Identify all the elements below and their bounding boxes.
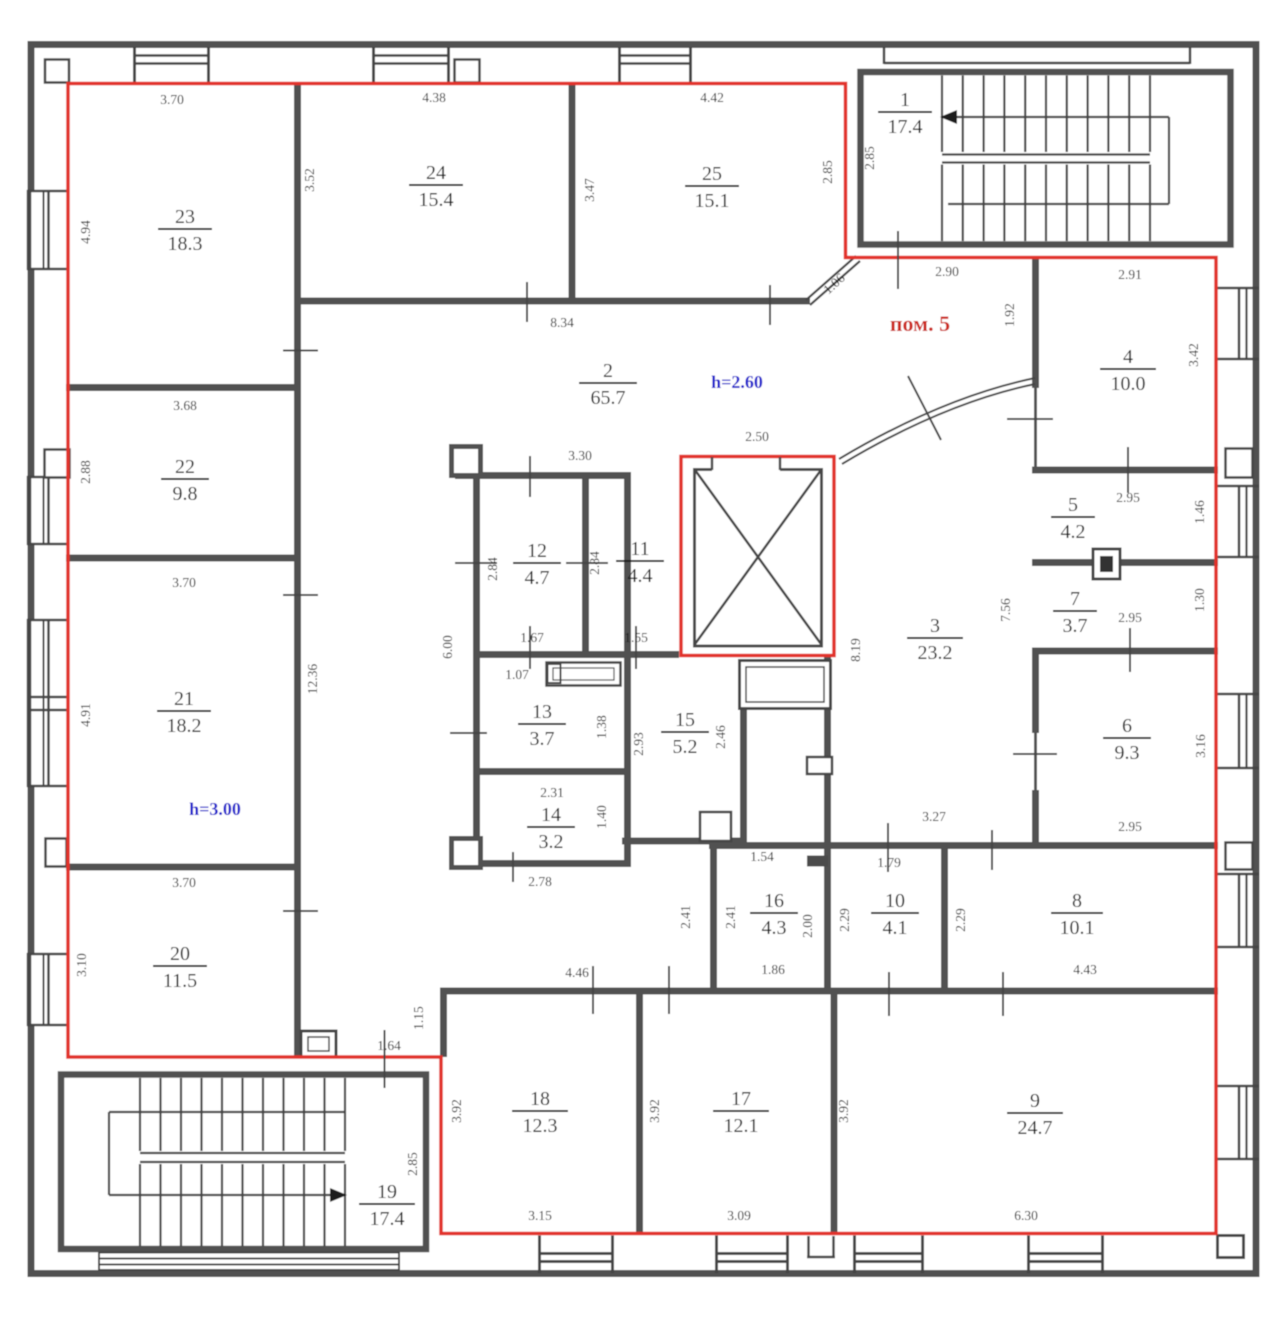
svg-text:2.50: 2.50 — [745, 429, 769, 444]
svg-text:6.00: 6.00 — [440, 635, 455, 659]
svg-text:11.5: 11.5 — [163, 970, 197, 992]
svg-text:24: 24 — [426, 162, 446, 184]
svg-text:12.3: 12.3 — [523, 1115, 558, 1137]
svg-text:2.90: 2.90 — [935, 264, 959, 279]
svg-text:1.15: 1.15 — [411, 1006, 426, 1030]
svg-text:17.4: 17.4 — [370, 1208, 405, 1230]
svg-text:1.55: 1.55 — [624, 630, 648, 645]
svg-text:10.1: 10.1 — [1060, 917, 1095, 939]
svg-text:3.92: 3.92 — [836, 1099, 851, 1123]
svg-text:3.52: 3.52 — [302, 168, 317, 192]
svg-text:7.56: 7.56 — [998, 598, 1013, 622]
svg-text:1.30: 1.30 — [1192, 588, 1207, 612]
svg-text:3.68: 3.68 — [173, 398, 197, 413]
svg-text:h=3.00: h=3.00 — [189, 799, 241, 819]
svg-text:9.8: 9.8 — [173, 483, 198, 505]
svg-text:3.27: 3.27 — [922, 809, 946, 824]
svg-text:22: 22 — [175, 456, 195, 478]
svg-text:9.3: 9.3 — [1115, 742, 1140, 764]
svg-text:2.29: 2.29 — [953, 908, 968, 932]
svg-text:3.7: 3.7 — [1063, 615, 1088, 637]
svg-text:4.2: 4.2 — [1061, 521, 1086, 543]
svg-text:8.19: 8.19 — [848, 638, 863, 662]
svg-text:2.91: 2.91 — [1118, 267, 1142, 282]
svg-text:15: 15 — [675, 709, 695, 731]
svg-text:3.70: 3.70 — [172, 875, 196, 890]
svg-text:2.84: 2.84 — [587, 551, 602, 575]
svg-text:4.38: 4.38 — [422, 90, 446, 105]
svg-text:2.46: 2.46 — [713, 725, 728, 749]
svg-text:16: 16 — [764, 890, 784, 912]
svg-text:2.00: 2.00 — [800, 914, 815, 938]
svg-text:4.3: 4.3 — [762, 917, 787, 939]
svg-text:1.92: 1.92 — [1002, 303, 1017, 327]
svg-text:3.30: 3.30 — [568, 448, 592, 463]
svg-text:3.7: 3.7 — [530, 728, 555, 750]
svg-text:3.2: 3.2 — [539, 831, 564, 853]
svg-text:24.7: 24.7 — [1018, 1117, 1053, 1139]
svg-text:65.7: 65.7 — [591, 387, 626, 409]
svg-text:2.88: 2.88 — [78, 460, 93, 484]
svg-text:1.79: 1.79 — [877, 855, 901, 870]
svg-text:2.31: 2.31 — [540, 785, 564, 800]
svg-text:4.42: 4.42 — [700, 90, 724, 105]
svg-text:3.10: 3.10 — [74, 953, 89, 977]
svg-text:1.64: 1.64 — [377, 1038, 401, 1053]
svg-text:2.95: 2.95 — [1118, 819, 1142, 834]
svg-text:2.41: 2.41 — [723, 905, 738, 929]
svg-text:1: 1 — [900, 89, 910, 111]
svg-text:23.2: 23.2 — [918, 642, 953, 664]
svg-text:21: 21 — [174, 688, 194, 710]
svg-text:2.95: 2.95 — [1118, 610, 1142, 625]
svg-text:3.15: 3.15 — [528, 1208, 552, 1223]
svg-text:12.1: 12.1 — [724, 1115, 759, 1137]
svg-text:18.2: 18.2 — [167, 715, 202, 737]
svg-text:4.91: 4.91 — [78, 703, 93, 727]
svg-text:пом. 5: пом. 5 — [890, 311, 950, 336]
svg-text:1.67: 1.67 — [520, 630, 544, 645]
svg-text:1.38: 1.38 — [594, 715, 609, 739]
svg-text:15.4: 15.4 — [419, 189, 454, 211]
svg-text:4.4: 4.4 — [628, 565, 653, 587]
svg-text:3.09: 3.09 — [727, 1208, 751, 1223]
svg-text:18.3: 18.3 — [168, 233, 203, 255]
svg-text:4: 4 — [1123, 346, 1133, 368]
svg-text:6.30: 6.30 — [1014, 1208, 1038, 1223]
svg-text:15.1: 15.1 — [695, 190, 730, 212]
svg-text:18: 18 — [530, 1088, 550, 1110]
svg-text:19: 19 — [377, 1181, 397, 1203]
svg-text:5.2: 5.2 — [673, 736, 698, 758]
svg-text:2.84: 2.84 — [485, 557, 500, 581]
svg-text:23: 23 — [175, 206, 195, 228]
svg-text:4.1: 4.1 — [883, 917, 908, 939]
svg-text:5: 5 — [1068, 494, 1078, 516]
svg-text:2.95: 2.95 — [1116, 490, 1140, 505]
svg-text:4.43: 4.43 — [1073, 962, 1097, 977]
svg-text:17: 17 — [731, 1088, 751, 1110]
svg-text:11: 11 — [630, 538, 649, 560]
svg-text:20: 20 — [170, 943, 190, 965]
svg-text:1.40: 1.40 — [594, 805, 609, 829]
svg-text:3.47: 3.47 — [582, 178, 597, 202]
svg-text:8.34: 8.34 — [550, 315, 574, 330]
svg-text:10: 10 — [885, 890, 905, 912]
svg-text:3.42: 3.42 — [1186, 343, 1201, 367]
svg-text:h=2.60: h=2.60 — [711, 372, 763, 392]
svg-text:3: 3 — [930, 615, 940, 637]
svg-text:2.85: 2.85 — [820, 160, 835, 184]
svg-text:1.07: 1.07 — [505, 667, 529, 682]
svg-text:17.4: 17.4 — [888, 116, 923, 138]
svg-text:1.86: 1.86 — [761, 962, 785, 977]
svg-text:2.29: 2.29 — [837, 908, 852, 932]
svg-text:6: 6 — [1122, 715, 1132, 737]
svg-text:3.16: 3.16 — [1193, 734, 1208, 758]
svg-text:8: 8 — [1072, 890, 1082, 912]
svg-text:2.41: 2.41 — [678, 905, 693, 929]
svg-text:1.46: 1.46 — [1192, 500, 1207, 524]
svg-text:12.36: 12.36 — [305, 664, 320, 695]
svg-text:2.93: 2.93 — [631, 732, 646, 756]
svg-text:4.94: 4.94 — [78, 220, 93, 244]
svg-text:25: 25 — [702, 163, 722, 185]
svg-text:3.92: 3.92 — [449, 1099, 464, 1123]
svg-text:13: 13 — [532, 701, 552, 723]
svg-text:1.54: 1.54 — [750, 849, 774, 864]
svg-text:7: 7 — [1070, 588, 1080, 610]
svg-text:12: 12 — [527, 540, 547, 562]
svg-text:14: 14 — [541, 804, 561, 826]
svg-text:4.7: 4.7 — [525, 567, 550, 589]
svg-text:2: 2 — [603, 360, 613, 382]
svg-text:4.46: 4.46 — [565, 965, 589, 980]
svg-text:2.78: 2.78 — [528, 874, 552, 889]
svg-text:2.85: 2.85 — [405, 1152, 420, 1176]
svg-text:3.92: 3.92 — [647, 1099, 662, 1123]
svg-text:2.85: 2.85 — [862, 146, 877, 170]
svg-text:9: 9 — [1030, 1090, 1040, 1112]
svg-text:3.70: 3.70 — [172, 575, 196, 590]
svg-text:3.70: 3.70 — [160, 92, 184, 107]
svg-text:10.0: 10.0 — [1111, 373, 1146, 395]
